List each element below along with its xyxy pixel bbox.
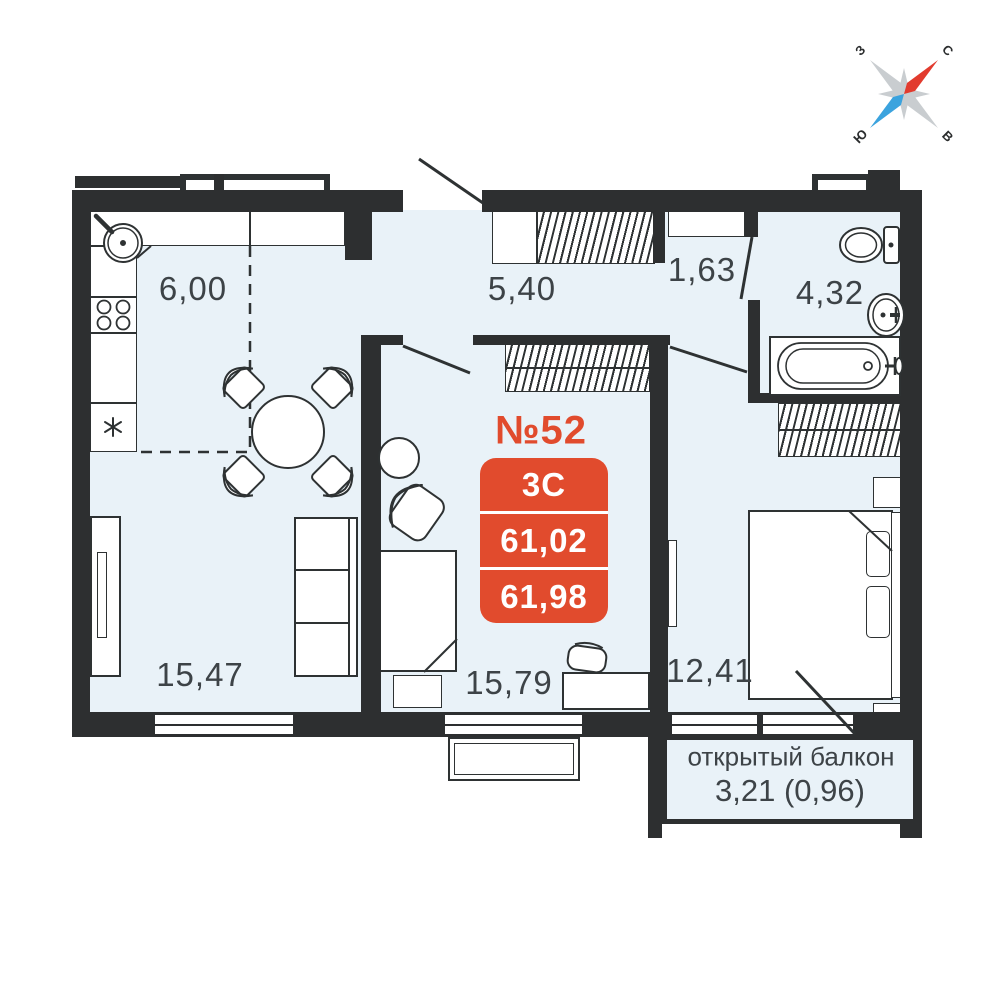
room-area-storage: 1,63: [668, 251, 736, 289]
compass-north-point: [904, 60, 938, 94]
compass-north-label: С: [939, 42, 957, 60]
fridge-icon: [105, 418, 121, 436]
bed-fold-line: [849, 511, 892, 551]
bathroom-door-swing: [741, 237, 752, 299]
badge-area-total: 61,02: [480, 514, 608, 567]
room-area-room: 15,79: [465, 664, 553, 702]
badge-type: 3С: [480, 458, 608, 511]
compass-south-point: [870, 94, 904, 128]
unit-number: №52: [495, 409, 587, 454]
balcony-area: 3,21 (0,96): [715, 773, 865, 809]
compass-rose: З С Ю В: [850, 42, 957, 147]
balcony-door-swing: [796, 671, 855, 734]
compass-west-label: З: [852, 42, 868, 58]
kitchen-zone-dashes: [137, 212, 250, 452]
floor-plan: З С Ю В 6,00 5,40 1,63 4,32 15,47 15,79 …: [0, 0, 1000, 1000]
unit-badge: 3С 61,02 61,98: [480, 458, 608, 623]
side-table: [379, 438, 419, 478]
compass-east-point: [904, 94, 938, 128]
compass-east-label: В: [939, 128, 956, 145]
chair-icon: [308, 452, 362, 506]
toilet-icon: [840, 227, 899, 263]
desk-chair-icon: [567, 641, 609, 674]
entrance-door-swing: [419, 159, 483, 203]
room-area-kitchen: 6,00: [159, 270, 227, 308]
room-area-living: 15,47: [156, 656, 244, 694]
room-area-bedroom: 12,41: [666, 652, 754, 690]
balcony-title: открытый балкон: [687, 742, 894, 773]
chair-icon: [215, 452, 269, 506]
washbasin-icon: [868, 294, 904, 336]
badge-area-sale: 61,98: [480, 570, 608, 623]
kitchen-sink-icon: [96, 216, 142, 262]
bed-fold-line: [424, 639, 457, 672]
compass-south-label: Ю: [850, 126, 870, 146]
compass-west-point: [870, 60, 904, 94]
room-area-bathroom: 4,32: [796, 274, 864, 312]
bathtub-icon: [770, 337, 903, 395]
chair-icon: [215, 359, 269, 413]
chair-icon: [308, 359, 362, 413]
room-area-hallway: 5,40: [488, 270, 556, 308]
armchair-icon: [380, 476, 449, 546]
dining-table: [215, 359, 362, 506]
stove-icon: [98, 301, 130, 330]
bedroom-door-swing: [670, 347, 747, 372]
room-door-swing: [403, 346, 470, 373]
